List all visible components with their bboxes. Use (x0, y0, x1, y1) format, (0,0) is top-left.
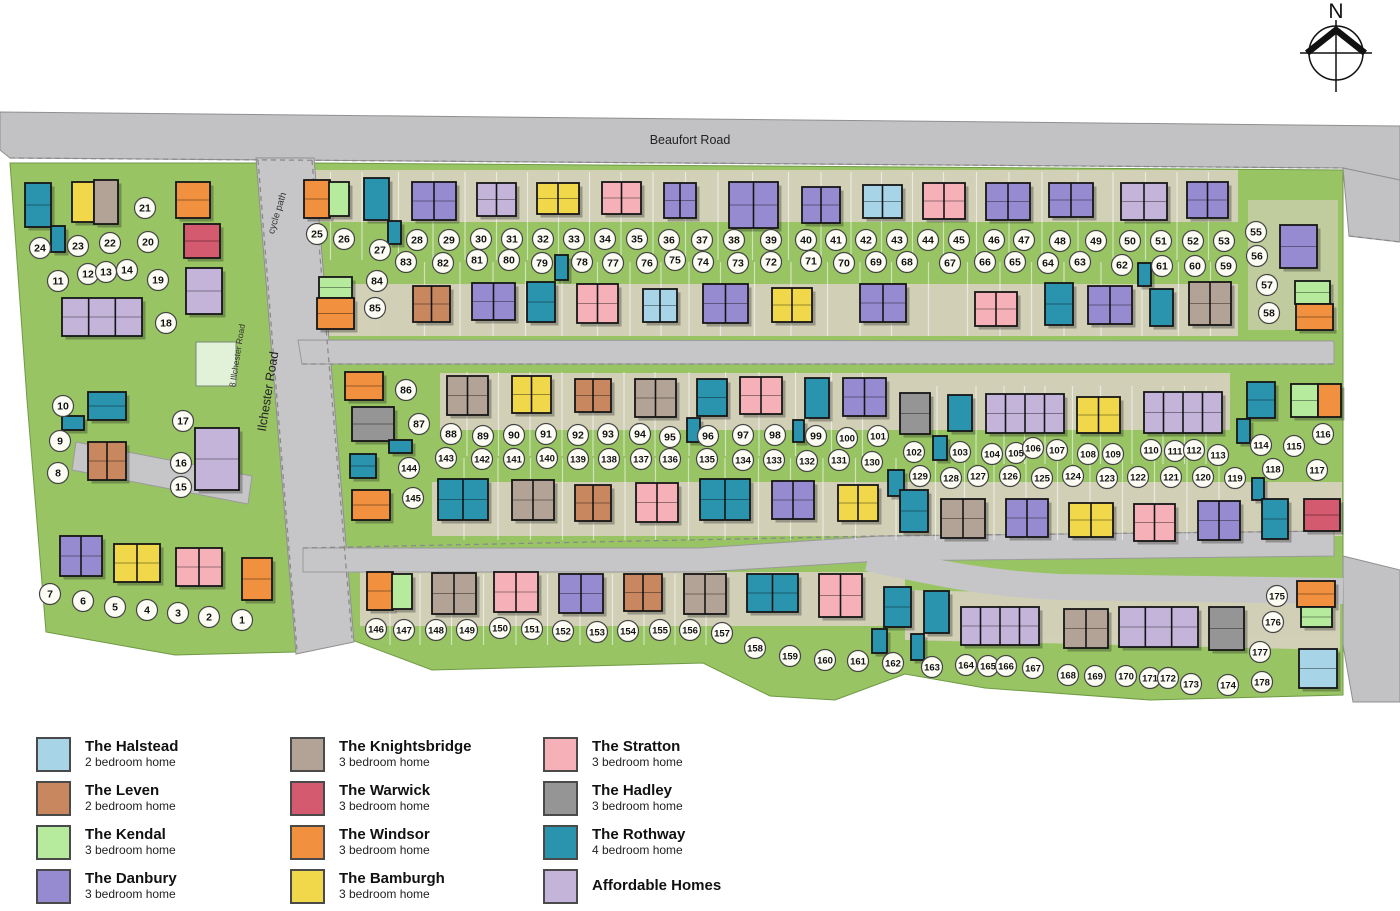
plot-number-61: 61 (1152, 256, 1173, 277)
house-knightsbridge (1189, 282, 1231, 325)
svg-text:73: 73 (732, 258, 744, 270)
legend-desc: 3 bedroom home (85, 844, 176, 858)
svg-text:18: 18 (160, 318, 172, 330)
house-rothway (1237, 419, 1250, 443)
house-windsor (304, 180, 330, 218)
plot-number-55: 55 (1246, 222, 1267, 243)
house-rothway (1247, 382, 1275, 418)
legend-desc: 3 bedroom home (592, 756, 683, 770)
house-danbury (559, 574, 603, 613)
house-danbury (772, 481, 814, 519)
plot-number-175: 175 (1267, 586, 1288, 607)
svg-text:11: 11 (52, 276, 63, 288)
plot-number-162: 162 (883, 653, 904, 674)
house-knightsbridge (635, 379, 676, 417)
plot-number-119: 119 (1225, 468, 1246, 489)
house-kendal (329, 182, 349, 216)
svg-text:152: 152 (555, 627, 571, 638)
legend-desc: 3 bedroom home (339, 888, 445, 902)
plot-number-7: 7 (40, 584, 61, 605)
svg-text:68: 68 (901, 257, 913, 269)
house-knightsbridge (432, 573, 476, 614)
house-stratton (602, 182, 641, 214)
plot-number-38: 38 (724, 230, 745, 251)
house-rothway (900, 490, 928, 532)
plot-number-129: 129 (910, 466, 931, 487)
svg-text:36: 36 (663, 235, 675, 247)
plot-number-172: 172 (1158, 668, 1179, 689)
svg-text:16: 16 (175, 458, 187, 470)
svg-text:163: 163 (924, 663, 940, 674)
plot-number-43: 43 (887, 230, 908, 251)
plot-number-26: 26 (334, 229, 355, 250)
house-rothway (700, 479, 750, 520)
svg-text:63: 63 (1074, 257, 1086, 269)
svg-text:139: 139 (570, 455, 586, 466)
house-windsor (317, 298, 354, 329)
svg-text:71: 71 (805, 256, 817, 268)
svg-text:24: 24 (34, 243, 46, 255)
svg-text:12: 12 (82, 269, 94, 281)
svg-text:160: 160 (817, 656, 833, 667)
house-knightsbridge (1064, 609, 1108, 648)
plot-number-57: 57 (1257, 275, 1278, 296)
svg-text:26: 26 (338, 234, 350, 246)
plot-number-41: 41 (826, 230, 847, 251)
svg-text:5: 5 (112, 602, 118, 614)
road-stub-northeast (1343, 168, 1400, 242)
plot-number-9: 9 (50, 431, 71, 452)
svg-text:159: 159 (782, 652, 798, 663)
svg-text:35: 35 (631, 234, 643, 246)
svg-text:58: 58 (1263, 308, 1275, 320)
svg-text:100: 100 (839, 434, 855, 445)
house-windsor (1296, 304, 1333, 330)
plot-number-29: 29 (439, 230, 460, 251)
legend-swatch-affordable (543, 869, 578, 904)
plot-number-118: 118 (1263, 459, 1284, 480)
plot-number-81: 81 (467, 250, 488, 271)
plot-number-21: 21 (135, 198, 156, 219)
house-rothway (911, 634, 924, 660)
plot-number-24: 24 (30, 238, 51, 259)
house-stratton (819, 574, 862, 617)
house-stratton (1134, 504, 1175, 541)
house-bamburgh (114, 544, 160, 582)
house-halstead (863, 185, 902, 218)
plot-number-28: 28 (407, 230, 428, 251)
svg-text:21: 21 (139, 203, 151, 215)
svg-text:77: 77 (607, 258, 619, 270)
svg-text:150: 150 (492, 624, 508, 635)
plot-number-128: 128 (941, 468, 962, 489)
legend-desc: 2 bedroom home (85, 756, 178, 770)
svg-text:83: 83 (400, 257, 412, 269)
legend-swatch-leven (36, 781, 71, 816)
plot-number-11: 11 (48, 271, 69, 292)
svg-text:61: 61 (1156, 261, 1168, 273)
plot-number-126: 126 (1000, 466, 1021, 487)
legend-swatch-kendal (36, 825, 71, 860)
plot-number-123: 123 (1097, 468, 1118, 489)
house-danbury (860, 284, 906, 322)
svg-text:34: 34 (599, 234, 611, 246)
svg-text:161: 161 (850, 657, 867, 668)
svg-text:7: 7 (47, 589, 53, 601)
plot-number-31: 31 (502, 229, 523, 250)
plot-number-153: 153 (587, 622, 608, 643)
svg-text:90: 90 (508, 430, 520, 442)
svg-text:155: 155 (652, 626, 669, 637)
svg-text:2: 2 (206, 612, 212, 624)
svg-text:59: 59 (1220, 261, 1232, 273)
plot-number-160: 160 (815, 650, 836, 671)
legend-item-leven: The Leven 2 bedroom home (36, 780, 290, 816)
svg-text:93: 93 (602, 429, 614, 441)
svg-text:142: 142 (474, 455, 490, 466)
svg-text:120: 120 (1195, 473, 1211, 484)
svg-text:158: 158 (747, 644, 763, 655)
plot-number-98: 98 (765, 425, 786, 446)
plot-number-114: 114 (1251, 435, 1272, 456)
plot-number-4: 4 (137, 600, 158, 621)
legend-desc: 2 bedroom home (85, 800, 176, 814)
legend-name: The Bamburgh (339, 870, 445, 887)
plot-number-157: 157 (712, 623, 733, 644)
svg-text:167: 167 (1025, 664, 1041, 675)
svg-text:31: 31 (506, 234, 518, 246)
plot-number-51: 51 (1151, 231, 1172, 252)
house-bamburgh (72, 182, 94, 222)
svg-text:137: 137 (633, 455, 649, 466)
house-kendal (1301, 607, 1332, 627)
svg-text:178: 178 (1254, 678, 1270, 689)
svg-text:164: 164 (958, 661, 975, 672)
house-knightsbridge (684, 574, 726, 614)
svg-text:92: 92 (572, 430, 584, 442)
house-rothway (793, 420, 804, 442)
house-rothway (872, 629, 887, 653)
svg-text:135: 135 (699, 455, 716, 466)
house-knightsbridge (512, 480, 554, 520)
plot-number-164: 164 (956, 655, 977, 676)
house-affordable (195, 428, 239, 490)
house-rothway (1262, 499, 1288, 539)
plot-number-108: 108 (1078, 444, 1099, 465)
house-windsor (242, 558, 272, 600)
house-knightsbridge (941, 499, 985, 538)
legend-swatch-danbury (36, 869, 71, 904)
svg-text:86: 86 (400, 385, 412, 397)
plot-number-159: 159 (780, 646, 801, 667)
svg-text:82: 82 (437, 258, 449, 270)
plot-number-76: 76 (637, 253, 658, 274)
compass-north-arrow (1300, 20, 1372, 92)
svg-text:114: 114 (1253, 441, 1269, 452)
plot-number-122: 122 (1128, 467, 1149, 488)
plot-number-117: 117 (1307, 460, 1328, 481)
plot-number-90: 90 (504, 425, 525, 446)
house-windsor (1318, 384, 1341, 417)
legend-name: The Warwick (339, 782, 430, 799)
svg-text:101: 101 (870, 432, 887, 443)
plot-number-5: 5 (105, 597, 126, 618)
plot-number-71: 71 (801, 251, 822, 272)
plot-number-94: 94 (630, 424, 651, 445)
plot-number-174: 174 (1218, 675, 1239, 696)
svg-text:94: 94 (634, 429, 646, 441)
plot-number-48: 48 (1050, 231, 1071, 252)
plot-number-148: 148 (426, 620, 447, 641)
plot-number-127: 127 (968, 466, 989, 487)
svg-text:38: 38 (728, 235, 740, 247)
house-knightsbridge (94, 180, 118, 224)
plot-number-115: 115 (1284, 436, 1305, 457)
plot-number-167: 167 (1023, 658, 1044, 679)
legend-item-bamburgh: The Bamburgh 3 bedroom home (290, 868, 543, 904)
house-halstead (1299, 649, 1337, 688)
house-bamburgh (838, 485, 878, 521)
svg-text:116: 116 (1315, 430, 1330, 441)
plot-number-144: 144 (399, 458, 420, 479)
legend-swatch-rothway (543, 825, 578, 860)
svg-text:149: 149 (459, 626, 475, 637)
plot-number-13: 13 (96, 262, 117, 283)
svg-text:128: 128 (943, 474, 959, 485)
legend-item-rothway: The Rothway 4 bedroom home (543, 824, 843, 860)
plot-number-143: 143 (436, 448, 457, 469)
svg-text:56: 56 (1251, 251, 1263, 263)
plot-number-141: 141 (504, 449, 525, 470)
house-danbury (1187, 182, 1228, 218)
plot-number-23: 23 (68, 236, 89, 257)
svg-text:97: 97 (737, 430, 749, 442)
house-knightsbridge (447, 376, 488, 415)
svg-text:153: 153 (589, 628, 605, 639)
legend-desc: 3 bedroom home (592, 800, 683, 814)
svg-text:126: 126 (1002, 472, 1018, 483)
house-stratton (176, 548, 222, 586)
legend-name: Affordable Homes (592, 877, 721, 894)
plot-number-150: 150 (490, 618, 511, 639)
plot-number-6: 6 (73, 591, 94, 612)
plot-number-95: 95 (660, 427, 681, 448)
plot-number-18: 18 (156, 313, 177, 334)
svg-text:25: 25 (311, 229, 323, 241)
svg-text:50: 50 (1124, 236, 1136, 248)
plot-number-111: 111 (1165, 441, 1186, 462)
plot-number-16: 16 (171, 453, 192, 474)
plot-number-82: 82 (433, 253, 454, 274)
house-stratton (975, 292, 1017, 326)
plot-number-25: 25 (307, 224, 328, 245)
house-rothway (747, 574, 798, 612)
legend-name: The Rothway (592, 826, 685, 843)
svg-text:76: 76 (641, 258, 653, 270)
plot-number-32: 32 (533, 229, 554, 250)
svg-text:45: 45 (953, 235, 965, 247)
plot-number-112: 112 (1184, 440, 1205, 461)
svg-text:162: 162 (885, 659, 901, 670)
plot-number-33: 33 (564, 229, 585, 250)
plot-number-135: 135 (697, 449, 718, 470)
svg-text:91: 91 (540, 429, 552, 441)
plot-number-169: 169 (1085, 666, 1106, 687)
svg-text:51: 51 (1155, 236, 1167, 248)
plot-number-35: 35 (627, 229, 648, 250)
svg-text:75: 75 (669, 255, 681, 267)
plot-number-19: 19 (148, 270, 169, 291)
plot-number-100: 100 (837, 428, 858, 449)
plot-number-60: 60 (1185, 256, 1206, 277)
svg-text:136: 136 (662, 455, 678, 466)
svg-text:22: 22 (104, 238, 116, 250)
house-rothway (51, 226, 65, 252)
svg-text:117: 117 (1309, 466, 1324, 477)
svg-text:72: 72 (765, 257, 777, 269)
svg-text:123: 123 (1099, 474, 1115, 485)
plot-number-137: 137 (631, 449, 652, 470)
svg-text:112: 112 (1186, 446, 1201, 457)
plot-number-158: 158 (745, 638, 766, 659)
plot-number-72: 72 (761, 252, 782, 273)
svg-text:134: 134 (735, 456, 752, 467)
plot-number-22: 22 (100, 233, 121, 254)
svg-text:14: 14 (121, 265, 133, 277)
svg-text:107: 107 (1049, 446, 1065, 457)
svg-text:19: 19 (152, 275, 164, 287)
legend-item-stratton: The Stratton 3 bedroom home (543, 736, 843, 772)
legend-desc: 3 bedroom home (85, 888, 177, 902)
legend-item-knightsbridge: The Knightsbridge 3 bedroom home (290, 736, 543, 772)
house-stratton (740, 377, 782, 414)
svg-text:88: 88 (445, 429, 457, 441)
house-windsor (367, 572, 393, 610)
svg-text:110: 110 (1143, 446, 1158, 457)
plot-number-27: 27 (370, 240, 391, 261)
house-windsor (345, 372, 383, 400)
svg-text:166: 166 (998, 662, 1014, 673)
house-rothway (555, 255, 568, 280)
svg-text:122: 122 (1130, 473, 1146, 484)
house-rothway (1252, 478, 1264, 500)
plot-number-2: 2 (199, 607, 220, 628)
house-danbury (1006, 499, 1048, 537)
plot-number-132: 132 (797, 451, 818, 472)
svg-text:44: 44 (922, 235, 934, 247)
plot-number-88: 88 (441, 424, 462, 445)
svg-text:64: 64 (1042, 258, 1054, 270)
svg-text:20: 20 (142, 237, 154, 249)
plot-number-99: 99 (806, 426, 827, 447)
house-danbury (664, 183, 696, 218)
house-leven (88, 442, 126, 480)
plot-number-50: 50 (1120, 231, 1141, 252)
plot-number-66: 66 (975, 252, 996, 273)
svg-text:85: 85 (369, 303, 381, 315)
plot-number-58: 58 (1259, 303, 1280, 324)
svg-text:147: 147 (396, 626, 412, 637)
svg-text:104: 104 (984, 450, 1001, 461)
house-affordable (1121, 183, 1167, 220)
svg-text:175: 175 (1269, 592, 1286, 603)
svg-text:157: 157 (714, 629, 730, 640)
house-stratton (923, 183, 965, 219)
svg-text:131: 131 (831, 456, 848, 467)
svg-text:119: 119 (1227, 474, 1242, 485)
plot-number-173: 173 (1181, 674, 1202, 695)
plot-number-170: 170 (1116, 666, 1137, 687)
plot-number-152: 152 (553, 621, 574, 642)
plot-number-20: 20 (138, 232, 159, 253)
legend-name: The Leven (85, 782, 176, 799)
svg-text:57: 57 (1261, 280, 1273, 292)
svg-text:10: 10 (57, 401, 69, 413)
svg-text:103: 103 (952, 448, 968, 459)
legend-swatch-windsor (290, 825, 325, 860)
legend-desc: 3 bedroom home (339, 844, 430, 858)
plot-number-91: 91 (536, 424, 557, 445)
house-warwick (1304, 499, 1340, 531)
house-affordable (1119, 607, 1198, 647)
plot-number-96: 96 (698, 426, 719, 447)
plot-number-79: 79 (532, 253, 553, 274)
house-bamburgh (772, 288, 812, 322)
svg-text:129: 129 (912, 472, 928, 483)
legend-swatch-hadley (543, 781, 578, 816)
house-halstead (643, 289, 677, 322)
legend-item-affordable: Affordable Homes (543, 868, 843, 904)
plot-number-46: 46 (984, 230, 1005, 251)
plot-number-42: 42 (856, 230, 877, 251)
house-rothway (697, 379, 727, 416)
legend-name: The Hadley (592, 782, 683, 799)
svg-text:37: 37 (696, 235, 708, 247)
svg-text:173: 173 (1183, 680, 1199, 691)
plot-number-15: 15 (171, 477, 192, 498)
svg-text:47: 47 (1018, 235, 1030, 247)
plot-number-30: 30 (471, 229, 492, 250)
svg-text:42: 42 (860, 235, 872, 247)
svg-text:78: 78 (576, 257, 588, 269)
plot-number-134: 134 (733, 450, 754, 471)
plot-number-69: 69 (866, 252, 887, 273)
house-affordable (986, 394, 1064, 433)
house-rothway (25, 183, 51, 227)
house-rothway (1150, 289, 1173, 326)
house-stratton (636, 483, 678, 522)
svg-text:53: 53 (1218, 236, 1230, 248)
house-affordable (1144, 392, 1222, 433)
svg-text:118: 118 (1265, 465, 1280, 476)
plot-number-67: 67 (940, 253, 961, 274)
legend-item-danbury: The Danbury 3 bedroom home (36, 868, 290, 904)
svg-text:111: 111 (1168, 447, 1184, 458)
svg-text:79: 79 (536, 258, 548, 270)
house-leven (575, 379, 611, 412)
plot-number-155: 155 (650, 620, 671, 641)
svg-text:74: 74 (697, 257, 709, 269)
svg-text:121: 121 (1163, 473, 1180, 484)
house-stratton (577, 284, 618, 323)
svg-text:151: 151 (524, 625, 541, 636)
svg-text:154: 154 (620, 627, 637, 638)
plot-number-130: 130 (862, 452, 883, 473)
svg-text:140: 140 (539, 454, 555, 465)
svg-text:172: 172 (1160, 674, 1176, 685)
house-affordable (186, 268, 222, 314)
svg-text:176: 176 (1265, 618, 1281, 629)
